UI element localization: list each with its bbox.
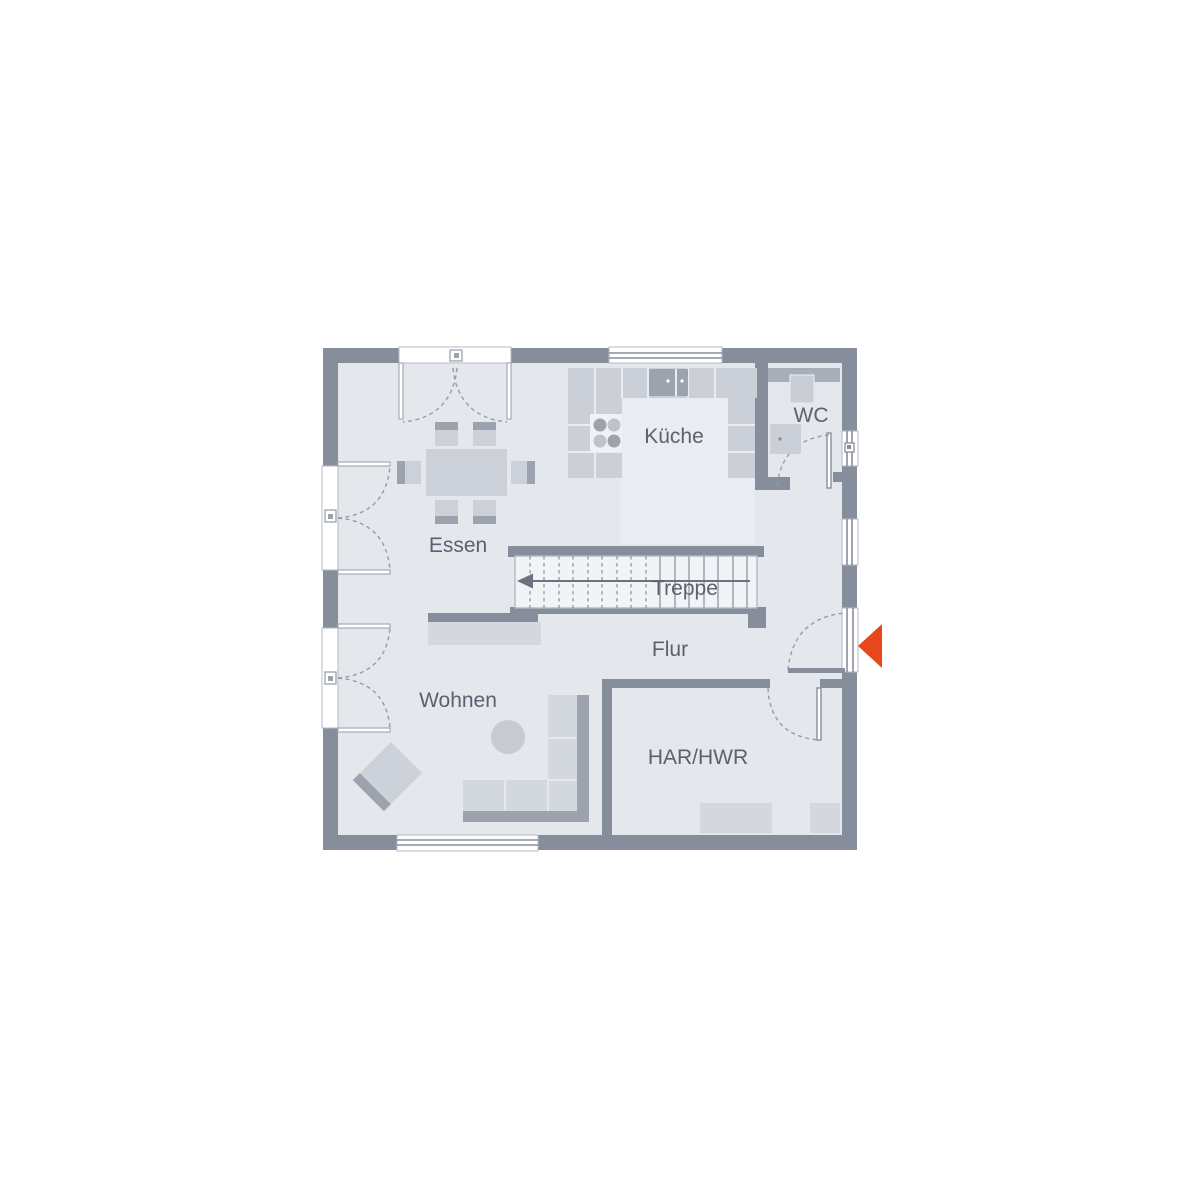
wall-wc-stub <box>833 472 842 482</box>
har-appliances <box>700 803 840 833</box>
dining-table <box>426 449 507 496</box>
window-kitchen-top <box>609 347 722 363</box>
wall-stairs-end <box>748 607 766 628</box>
coffee-table <box>491 720 525 754</box>
wall-right <box>842 348 857 850</box>
floor-plan-svg <box>0 0 1200 1200</box>
wall-wc-bottom <box>755 477 790 490</box>
kitchen-sink <box>649 369 688 396</box>
window-wc <box>842 431 858 466</box>
entrance-arrow-icon <box>858 624 882 668</box>
window-hall <box>842 519 858 565</box>
wall-left <box>323 348 338 850</box>
appliance <box>700 803 772 833</box>
sideboard <box>428 622 541 645</box>
wall-har-top-stub <box>820 679 842 688</box>
wc-sink <box>770 424 801 454</box>
window-bottom <box>397 835 538 851</box>
appliance <box>810 803 840 833</box>
toilet <box>790 375 814 403</box>
floor-plan-page: Essen Küche WC Treppe Flur Wohnen HAR/HW… <box>0 0 1200 1200</box>
wall-har-top <box>602 679 770 688</box>
cooktop <box>590 414 622 452</box>
stairs <box>515 556 757 608</box>
wall-hall <box>428 613 538 622</box>
wall-har-left <box>602 679 612 835</box>
